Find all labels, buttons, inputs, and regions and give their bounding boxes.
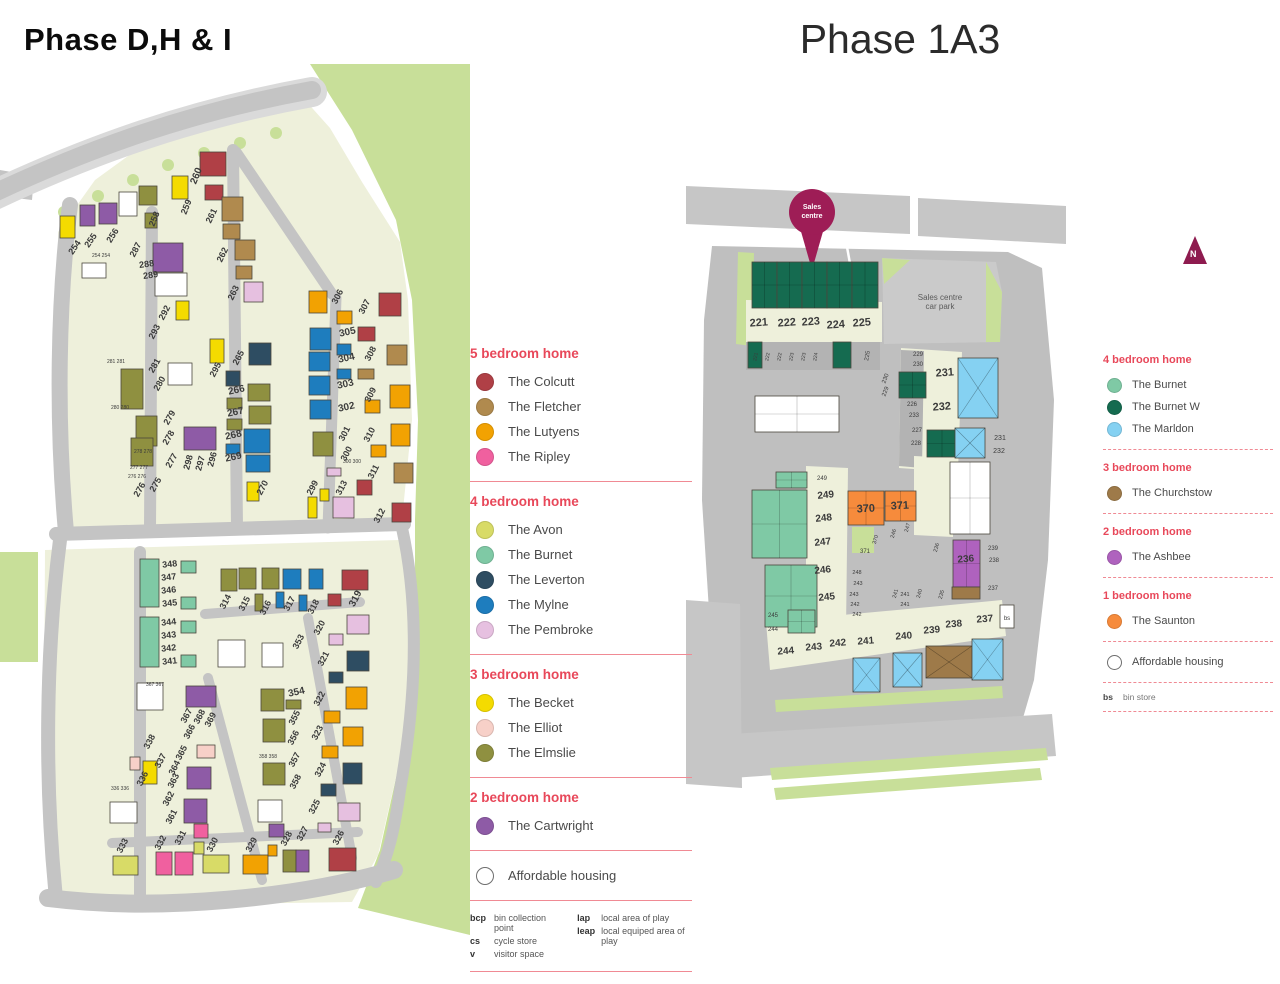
map-label: 336 336 xyxy=(111,786,129,792)
house-elmslie xyxy=(261,689,284,711)
house-pembroke xyxy=(347,615,369,634)
map-label: 358 358 xyxy=(259,754,277,760)
legend-item-label: The Colcutt xyxy=(508,374,574,389)
legend-item-label: The Cartwright xyxy=(508,818,593,833)
house-colcutt xyxy=(329,848,356,871)
map-label: 344 xyxy=(161,616,177,628)
house-type-swatch xyxy=(476,571,494,589)
house-leverton xyxy=(321,784,336,796)
legend-section-header: 3 bedroom home xyxy=(1103,462,1273,474)
legend-item: The Marldon xyxy=(1103,418,1273,440)
house-becket xyxy=(308,497,317,518)
house-white xyxy=(110,802,137,823)
house-elmslie xyxy=(262,568,279,589)
legend-divider xyxy=(1103,513,1273,514)
house-marldon xyxy=(972,639,1003,680)
abbreviation-item: cscycle store xyxy=(470,936,567,946)
legend-item-label: The Burnet xyxy=(1132,379,1186,391)
house-ripley xyxy=(156,852,172,875)
abbreviation-item: vvisitor space xyxy=(470,949,567,959)
map-label: 221 xyxy=(749,316,768,329)
house-colcutt xyxy=(357,480,372,495)
house-type-swatch xyxy=(1107,400,1122,415)
map-label: 248 xyxy=(815,512,833,525)
phase-1a3-legend: 4 bedroom homeThe BurnetThe Burnet WThe … xyxy=(1103,342,1273,721)
house-white xyxy=(755,396,839,432)
house-leverton xyxy=(347,651,369,671)
house-burnet xyxy=(181,655,196,667)
house-burnetw xyxy=(827,262,852,308)
map-label: 348 xyxy=(162,558,178,570)
house-burnetw xyxy=(833,342,851,368)
legend-item: The Saunton xyxy=(1103,610,1273,632)
house-pembroke xyxy=(338,803,360,821)
house-white xyxy=(950,462,990,534)
map-label: 341 xyxy=(162,655,178,667)
house-burnetw xyxy=(752,262,777,308)
map-label: 222 xyxy=(777,316,796,329)
house-pembroke xyxy=(329,634,343,645)
map-label: 254 254 xyxy=(92,253,110,259)
house-marldon xyxy=(958,358,998,418)
map-label: 243 xyxy=(805,641,823,653)
house-elmslie xyxy=(249,406,271,424)
house-white xyxy=(82,263,106,278)
legend-item-label: The Fletcher xyxy=(508,399,581,414)
map-label: 371 xyxy=(860,549,871,555)
legend-divider xyxy=(470,481,692,482)
phase-dhi-legend: 5 bedroom homeThe ColcuttThe FletcherThe… xyxy=(470,334,692,984)
house-mylne xyxy=(246,455,270,472)
house-white xyxy=(258,800,282,822)
site-plan-page: Phase D,H & I Phase 1A3 2542552562582592… xyxy=(0,0,1280,974)
house-pembroke xyxy=(318,823,331,832)
legend-item: The Leverton xyxy=(470,567,692,592)
map-label: 230 xyxy=(913,362,924,368)
map-label: 347 xyxy=(161,571,177,583)
map-label: 245 xyxy=(818,591,836,604)
house-pembroke xyxy=(333,497,354,518)
abbreviations: bcpbin collection pointcscycle storevvis… xyxy=(470,913,692,959)
house-colcutt xyxy=(342,570,368,590)
house-elmslie xyxy=(313,432,333,456)
house-cartwright xyxy=(184,799,207,823)
legend-item: The Burnet xyxy=(470,542,692,567)
house-type-swatch xyxy=(1107,422,1122,437)
affordable-housing-label: Affordable housing xyxy=(508,868,616,883)
map-label: 229 xyxy=(913,352,924,358)
map-label: 232 xyxy=(993,448,1005,455)
map-label: 225 xyxy=(852,316,871,329)
map-label: 244 xyxy=(768,627,779,633)
house-elliot xyxy=(130,757,140,770)
map-label: 371 xyxy=(890,500,909,513)
map-label: 242 xyxy=(829,637,847,649)
house-mylne xyxy=(309,352,330,371)
legend-item-label: The Avon xyxy=(508,522,563,537)
map-label: 277 277 xyxy=(130,465,148,471)
map-label: 370 xyxy=(856,503,875,516)
north-arrow-label: N xyxy=(1190,249,1197,259)
map-label: 246 xyxy=(814,564,832,577)
house-pembroke xyxy=(244,282,263,302)
house-burnet xyxy=(181,561,196,573)
map-label: 227 xyxy=(912,428,923,434)
map-label: 242 xyxy=(852,612,861,618)
house-burnet xyxy=(776,472,807,488)
house-white xyxy=(218,640,245,667)
house-white xyxy=(119,192,137,216)
house-lutyens xyxy=(346,687,367,709)
house-becket xyxy=(320,489,329,501)
phase-dhi-title: Phase D,H & I xyxy=(24,22,232,58)
abbreviation-label: local area of play xyxy=(601,913,669,923)
legend-item-label: The Burnet xyxy=(508,547,572,562)
map-label: 276 276 xyxy=(128,474,146,480)
map-label: 231 xyxy=(935,366,954,379)
house-type-swatch xyxy=(1107,550,1122,565)
legend-item: The Colcutt xyxy=(470,369,692,394)
house-burnetw xyxy=(899,372,926,398)
abbreviation-item: laplocal area of play xyxy=(577,913,692,923)
house-cartwright xyxy=(153,243,183,272)
house-type-swatch xyxy=(476,546,494,564)
legend-item-label: The Ashbee xyxy=(1132,551,1191,563)
abbreviation-item: leaplocal equiped area of play xyxy=(577,926,692,946)
house-churchstow xyxy=(952,587,980,599)
legend-item: The Becket xyxy=(470,690,692,715)
house-cartwright xyxy=(99,203,117,224)
house-type-swatch xyxy=(476,521,494,539)
abbreviation-item: bcpbin collection point xyxy=(470,913,567,933)
house-fletcher xyxy=(223,224,240,239)
house-burnetw xyxy=(852,262,878,308)
map-label: 228 xyxy=(911,441,922,447)
legend-divider xyxy=(470,971,692,972)
map-label: 248 xyxy=(852,570,861,576)
abbreviation-column: laplocal area of playleaplocal equiped a… xyxy=(577,913,692,959)
house-type-swatch xyxy=(476,373,494,391)
map-label: 240 xyxy=(895,630,913,642)
abbreviation-label: cycle store xyxy=(494,936,537,946)
house-elmslie xyxy=(239,568,256,589)
legend-item-affordable: Affordable housing xyxy=(1103,651,1273,673)
legend-item-label: The Ripley xyxy=(508,449,570,464)
map-label: 278 278 xyxy=(134,449,152,455)
house-burnet xyxy=(181,621,196,633)
legend-item: The Burnet W xyxy=(1103,396,1273,418)
house-avon xyxy=(194,842,204,854)
legend-item: The Mylne xyxy=(470,592,692,617)
house-fletcher xyxy=(236,266,252,279)
legend-divider xyxy=(1103,711,1273,712)
map-label: 245 xyxy=(768,613,779,619)
affordable-housing-swatch xyxy=(1107,655,1122,670)
map-label: bs xyxy=(1004,616,1010,622)
house-type-swatch xyxy=(1107,486,1122,501)
house-lutyens xyxy=(391,424,410,446)
house-lutyens xyxy=(343,727,363,746)
map-label: 300 300 xyxy=(343,459,361,465)
house-cartwright xyxy=(184,427,216,450)
house-burnet xyxy=(752,490,807,558)
legend-item: The Churchstow xyxy=(1103,482,1273,504)
phase-1a3-title: Phase 1A3 xyxy=(740,16,1060,63)
house-burnetw xyxy=(802,262,827,308)
house-type-swatch xyxy=(476,694,494,712)
abbreviation-key: v xyxy=(470,949,494,959)
house-lutyens xyxy=(268,845,277,856)
house-becket xyxy=(176,301,189,320)
house-leverton xyxy=(249,343,271,365)
house-cartwright xyxy=(186,686,216,707)
map-label: 243 xyxy=(849,592,858,598)
map-label: Sales xyxy=(803,204,821,211)
map-label: 244 xyxy=(777,645,795,657)
abbreviation-key: bcp xyxy=(470,913,494,933)
house-white xyxy=(155,273,187,296)
legend-section-header: 4 bedroom home xyxy=(470,494,692,509)
map-label: 231 xyxy=(994,435,1006,442)
house-burnetw xyxy=(927,430,957,457)
legend-divider xyxy=(470,654,692,655)
phase-dhi-site-map: 2542552562582592602612622632872882892922… xyxy=(0,60,475,940)
house-burnet xyxy=(140,617,159,667)
house-elmslie xyxy=(263,763,285,785)
house-type-swatch xyxy=(476,423,494,441)
legend-section-header: 2 bedroom home xyxy=(470,790,692,805)
house-elmslie xyxy=(221,569,237,591)
legend-item: The Ripley xyxy=(470,444,692,469)
legend-item-label: The Churchstow xyxy=(1132,487,1212,499)
house-lutyens xyxy=(324,711,340,723)
house-mylne xyxy=(310,400,331,419)
house-type-swatch xyxy=(476,448,494,466)
house-fletcher xyxy=(222,197,243,221)
abbreviation-key: lap xyxy=(577,913,601,923)
house-elmslie xyxy=(248,384,270,401)
map-label: 342 xyxy=(161,642,177,654)
map-label: 288 xyxy=(138,258,154,270)
map-label: 346 xyxy=(161,584,177,596)
map-label: 281 281 xyxy=(107,359,125,365)
house-colcutt xyxy=(379,293,401,316)
abbreviation-label: local equiped area of play xyxy=(601,926,692,946)
legend-divider xyxy=(1103,577,1273,578)
house-colcutt xyxy=(358,327,375,341)
map-label: 249 xyxy=(817,489,835,502)
map-label: 233 xyxy=(909,413,920,419)
house-white xyxy=(168,363,192,385)
house-elmslie xyxy=(121,369,143,409)
house-leverton xyxy=(329,672,343,683)
house-type-swatch xyxy=(1107,378,1122,393)
legend-item-label: The Elliot xyxy=(508,720,562,735)
house-fletcher xyxy=(235,240,255,260)
legend-item: The Avon xyxy=(470,517,692,542)
map-label: 224 xyxy=(826,318,846,331)
map-label: 241 xyxy=(857,635,875,647)
house-lutyens xyxy=(309,291,327,313)
house-type-swatch xyxy=(476,621,494,639)
map-label: 241 xyxy=(900,602,909,608)
map-label: 236 xyxy=(957,553,975,565)
house-avon xyxy=(113,856,138,875)
map-label: 247 xyxy=(814,536,832,549)
house-cartwright xyxy=(296,850,309,872)
house-cartwright xyxy=(80,205,95,226)
map-label: 241 xyxy=(900,592,909,598)
house-lutyens xyxy=(243,855,268,874)
map-label: 289 xyxy=(142,269,158,281)
house-becket xyxy=(60,216,75,238)
house-type-swatch xyxy=(476,744,494,762)
legend-item: The Burnet xyxy=(1103,374,1273,396)
house-mylne xyxy=(283,569,301,589)
house-marldon xyxy=(955,428,985,458)
legend-item: The Cartwright xyxy=(470,813,692,838)
house-fletcher xyxy=(394,463,413,483)
map-label: 238 xyxy=(989,558,1000,564)
legend-divider xyxy=(1103,641,1273,642)
abbreviation-label: bin collection point xyxy=(494,913,567,933)
abbreviation-item: bsbin store xyxy=(1103,692,1273,702)
house-type-swatch xyxy=(476,596,494,614)
north-arrow: N xyxy=(1183,236,1209,268)
house-marldon xyxy=(893,653,922,687)
house-mylne xyxy=(309,569,323,589)
legend-item: The Lutyens xyxy=(470,419,692,444)
map-label: 243 xyxy=(853,581,862,587)
legend-item-label: The Lutyens xyxy=(508,424,580,439)
legend-item: The Pembroke xyxy=(470,617,692,642)
map-label: 345 xyxy=(162,597,178,609)
house-churchstow xyxy=(926,646,972,678)
map-label: 367 367 xyxy=(146,682,164,688)
house-leverton xyxy=(343,763,362,784)
abbreviation-key: leap xyxy=(577,926,601,946)
legend-item-affordable: Affordable housing xyxy=(470,863,692,888)
house-type-swatch xyxy=(476,719,494,737)
abbreviation-label: bin store xyxy=(1123,692,1156,702)
legend-section-header: 4 bedroom home xyxy=(1103,354,1273,366)
house-elmslie xyxy=(286,700,301,709)
legend-item-label: The Leverton xyxy=(508,572,585,587)
legend-divider xyxy=(470,850,692,851)
house-colcutt xyxy=(392,503,411,522)
house-lutyens xyxy=(390,385,410,408)
abbreviation-key: bs xyxy=(1103,692,1123,702)
map-label: 237 xyxy=(988,586,999,592)
house-fletcher xyxy=(387,345,407,365)
house-type-swatch xyxy=(476,398,494,416)
legend-item: The Elmslie xyxy=(470,740,692,765)
legend-item-label: The Mylne xyxy=(508,597,569,612)
legend-divider xyxy=(470,900,692,901)
house-type-swatch xyxy=(476,817,494,835)
house-burnet xyxy=(181,597,196,609)
house-becket xyxy=(210,339,224,363)
house-elliot xyxy=(197,745,215,758)
legend-item-label: The Marldon xyxy=(1132,423,1194,435)
house-white xyxy=(262,643,283,667)
map-label: 232 xyxy=(932,400,951,413)
abbreviation-key: cs xyxy=(470,936,494,946)
house-ripley xyxy=(175,852,193,875)
legend-item-label: The Burnet W xyxy=(1132,401,1200,413)
house-elmslie xyxy=(139,186,157,205)
house-marldon xyxy=(853,658,880,692)
map-label: 238 xyxy=(945,618,963,630)
legend-item: The Fletcher xyxy=(470,394,692,419)
legend-section-header: 5 bedroom home xyxy=(470,346,692,361)
house-lutyens xyxy=(337,311,352,324)
map-label: centre xyxy=(801,213,822,220)
house-fletcher xyxy=(358,369,374,379)
map-label: 237 xyxy=(976,613,994,625)
house-becket xyxy=(172,176,188,199)
map-label: 242 xyxy=(850,602,859,608)
house-avon xyxy=(203,855,229,873)
legend-item-label: The Saunton xyxy=(1132,615,1195,627)
house-elmslie xyxy=(283,850,296,872)
legend-item-label: The Pembroke xyxy=(508,622,593,637)
legend-section-header: 1 bedroom home xyxy=(1103,590,1273,602)
house-lutyens xyxy=(371,445,386,457)
house-burnet xyxy=(140,559,159,607)
legend-item: The Elliot xyxy=(470,715,692,740)
map-label: 223 xyxy=(801,315,820,328)
house-ripley xyxy=(194,824,208,838)
house-type-swatch xyxy=(1107,614,1122,629)
house-burnetw xyxy=(777,262,802,308)
house-burnet xyxy=(788,610,815,633)
legend-item-label: The Elmslie xyxy=(508,745,576,760)
house-mylne xyxy=(310,328,331,350)
map-label: 343 xyxy=(161,629,177,641)
legend-divider xyxy=(1103,682,1273,683)
legend-section-header: 2 bedroom home xyxy=(1103,526,1273,538)
abbreviation-label: visitor space xyxy=(494,949,544,959)
house-colcutt xyxy=(205,185,223,200)
house-mylne xyxy=(244,429,270,453)
legend-divider xyxy=(470,777,692,778)
affordable-housing-label: Affordable housing xyxy=(1132,656,1224,668)
legend-item: The Ashbee xyxy=(1103,546,1273,568)
house-pembroke xyxy=(327,468,341,476)
phase-1a3-site-map: Salescentre221222223224225Sales centreca… xyxy=(684,180,1076,820)
legend-section-header: 3 bedroom home xyxy=(470,667,692,682)
affordable-housing-swatch xyxy=(476,867,494,885)
house-elmslie xyxy=(263,719,285,742)
map-label: 239 xyxy=(988,546,999,552)
legend-divider xyxy=(1103,449,1273,450)
map-label: 239 xyxy=(923,624,941,636)
house-lutyens xyxy=(322,746,338,758)
map-label: 249 xyxy=(817,476,828,482)
map-label: 226 xyxy=(907,402,918,408)
house-cartwright xyxy=(187,767,211,789)
abbreviation-column: bcpbin collection pointcscycle storevvis… xyxy=(470,913,567,959)
legend-item-label: The Becket xyxy=(508,695,574,710)
house-colcutt xyxy=(328,594,341,606)
map-label: 280 280 xyxy=(111,405,129,411)
house-mylne xyxy=(309,376,330,395)
